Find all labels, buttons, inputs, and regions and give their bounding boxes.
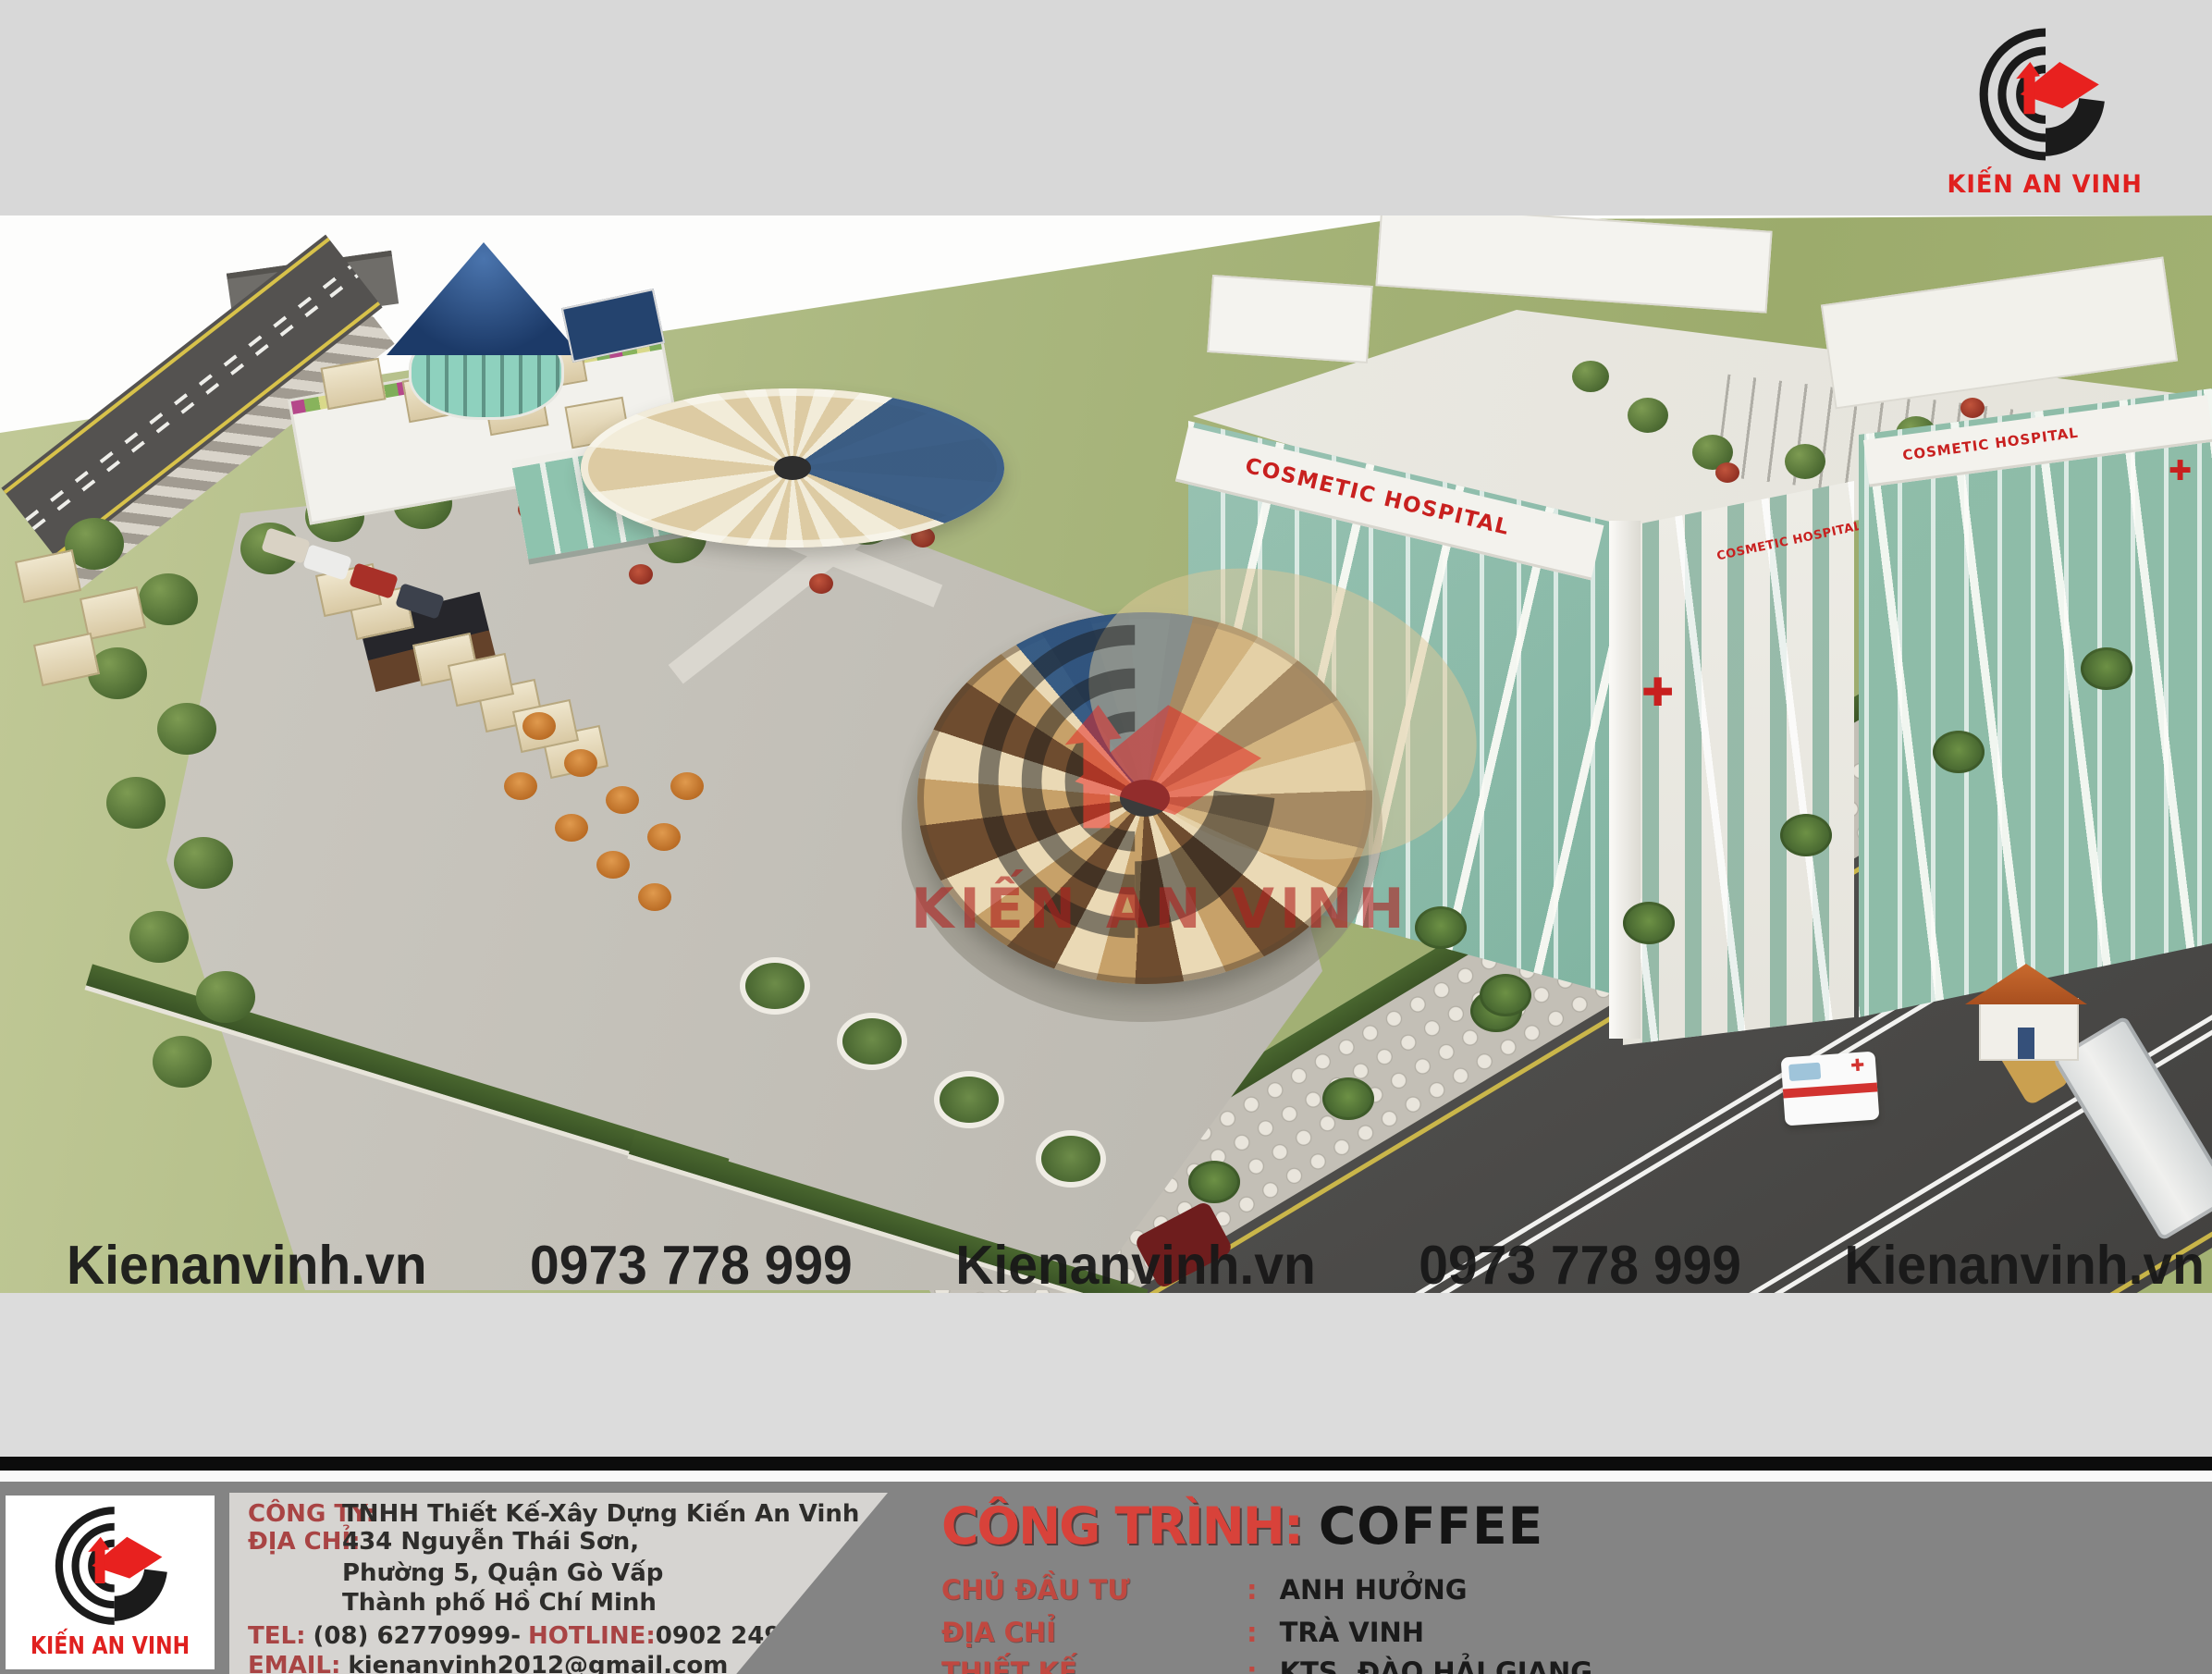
roof-tree [1628, 398, 1668, 433]
palm-tree [1780, 814, 1832, 856]
hospital-corner-column [1609, 521, 1641, 1039]
umbrella-orange [638, 883, 671, 911]
red-shrub [809, 573, 833, 594]
roof-slab [1207, 275, 1372, 363]
watermark-phone: 0973 778 999 [530, 1234, 853, 1298]
company-info-block: CÔNG TY:TNHH Thiết Kế-Xây Dựng Kiến An V… [229, 1493, 888, 1674]
watermark-phone: 0973 778 999 [1419, 1234, 1741, 1298]
roof-shrub [1715, 462, 1739, 483]
project-row-designer: THIẾT KẾ:KTS. ĐÀO HẢI GIANG [941, 1656, 1592, 1674]
header-logo-caption: KIẾN AN VINH [1948, 170, 2141, 199]
company-row: CÔNG TY:TNHH Thiết Kế-Xây Dựng Kiến An V… [248, 1500, 859, 1528]
project-row-investor: CHỦ ĐẦU TƯ:ANH HƯỞNG [941, 1574, 1468, 1606]
company-value: TNHH Thiết Kế-Xây Dựng Kiến An Vinh [342, 1500, 859, 1528]
watermark-site: Kienanvinh.vn [67, 1234, 427, 1298]
tree [129, 911, 189, 963]
project-name: COFFEE [1319, 1496, 1543, 1556]
hotline-label: HOTLINE: [528, 1622, 656, 1650]
rotunda-cone-roof [387, 242, 581, 355]
canopy-hub [774, 456, 811, 480]
planter-circle [740, 957, 810, 1015]
roof-tree [1785, 444, 1825, 479]
address-value: 434 Nguyễn Thái Sơn, [342, 1528, 639, 1556]
separator-white [0, 1471, 2212, 1482]
hotline-value: 0902 249297 [656, 1622, 831, 1650]
watermark-site: Kienanvinh.vn [1844, 1234, 2205, 1298]
email-row: EMAIL:kienanvinh2012@gmail.com [248, 1652, 728, 1674]
red-shrub [629, 564, 653, 585]
project-label: CÔNG TRÌNH: [941, 1496, 1302, 1556]
address-row-2: Phường 5, Quận Gò Vấp [342, 1559, 663, 1587]
gatehouse [1979, 998, 2079, 1061]
header-band: KIẾN AN VINH [0, 0, 2212, 215]
palm-tree [1188, 1161, 1240, 1203]
red-cross-icon: ✚ [2169, 458, 2192, 486]
tel-row: TEL:(08) 62770999-HOTLINE:0902 249297 [248, 1622, 831, 1650]
tree [153, 1036, 212, 1088]
umbrella-orange [555, 814, 588, 842]
watermark-caption: KIẾN AN VINH [911, 877, 1346, 942]
tree [174, 837, 233, 889]
umbrella-orange [522, 712, 556, 740]
umbrella-orange [504, 772, 537, 800]
planter-circle [837, 1013, 907, 1070]
watermark-row: Kienanvinh.vn 0973 778 999 Kienanvinh.vn… [67, 1236, 2205, 1295]
render-scene: COSMETIC HOSPITAL COSMETIC HOSPITAL ✚ CO… [0, 215, 2212, 1293]
tel-label: TEL: [248, 1622, 305, 1650]
email-value: kienanvinh2012@gmail.com [348, 1652, 728, 1674]
palm-tree [1322, 1077, 1374, 1120]
round-canopy-small [581, 388, 1004, 548]
palm-tree [1623, 902, 1675, 944]
umbrella-orange [670, 772, 704, 800]
planter-circle [934, 1071, 1004, 1128]
company-label: CÔNG TY: [248, 1500, 342, 1528]
umbrella-orange [564, 749, 597, 777]
kienanvinh-logo-icon [1964, 24, 2121, 165]
presentation-board: KIẾN AN VINH [0, 0, 2212, 1674]
roof-tree [1572, 361, 1609, 392]
address-row-3: Thành phố Hồ Chí Minh [342, 1589, 657, 1617]
palm-tree [1415, 906, 1467, 949]
planter-circle [1036, 1130, 1106, 1188]
separator-black [0, 1457, 2212, 1471]
tree [139, 573, 198, 625]
tree [196, 971, 255, 1023]
red-cross-icon: ✚ [1641, 673, 1674, 712]
gatehouse-door [2018, 1028, 2034, 1059]
tree [157, 703, 216, 755]
ambulance: ✚ [1781, 1052, 1880, 1126]
tree [106, 777, 166, 829]
watermark-site: Kienanvinh.vn [955, 1234, 1316, 1298]
palm-tree [1933, 731, 1985, 773]
footer-logo-box: KIẾN AN VINH [6, 1496, 215, 1669]
palm-tree [2081, 647, 2132, 690]
email-label: EMAIL: [248, 1652, 340, 1674]
bottom-margin-band [0, 1293, 2212, 1457]
umbrella-orange [606, 786, 639, 814]
footer-logo-caption: KIẾN AN VINH [21, 1632, 199, 1660]
project-title: CÔNG TRÌNH:COFFEE [941, 1496, 1543, 1556]
roof-shrub [1960, 398, 1985, 418]
title-block: KIẾN AN VINH CÔNG TY:TNHH Thiết Kế-Xây D… [0, 1482, 2212, 1674]
project-row-location: ĐỊA CHỈ:TRÀ VINH [941, 1617, 1424, 1648]
tel-value: (08) 62770999- [313, 1622, 521, 1650]
umbrella-orange [596, 851, 630, 879]
palm-tree [1480, 974, 1531, 1016]
address-label: ĐỊA CHỈ: [248, 1528, 342, 1556]
kienanvinh-logo-icon [43, 1503, 181, 1629]
umbrella-orange [647, 823, 681, 851]
address-row: ĐỊA CHỈ:434 Nguyễn Thái Sơn, [248, 1528, 639, 1556]
